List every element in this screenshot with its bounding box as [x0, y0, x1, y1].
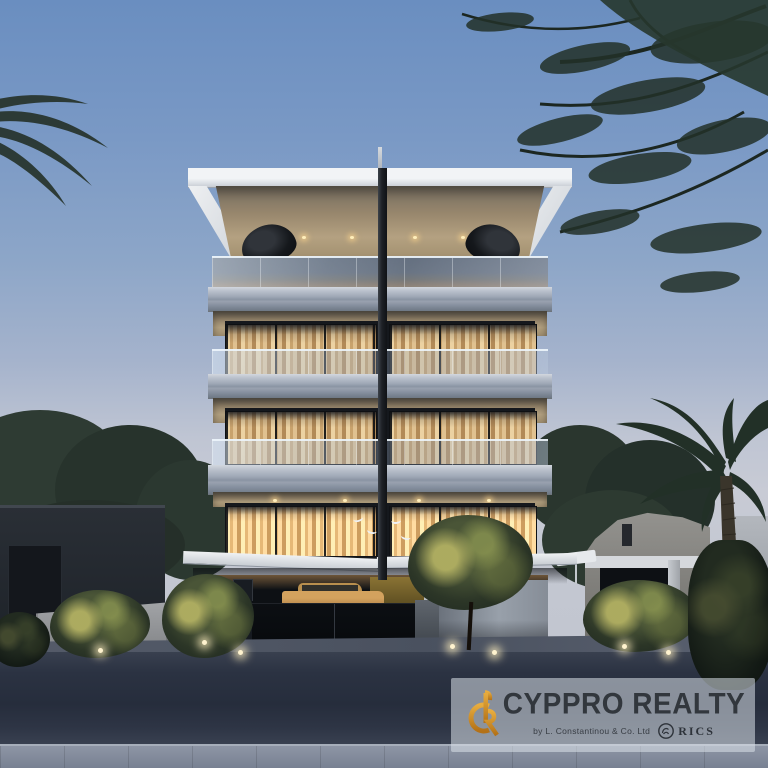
ceiling-spotlight — [417, 499, 421, 502]
lit-window — [225, 506, 377, 557]
ceiling-spotlight — [302, 236, 306, 239]
garden-uplight — [622, 644, 627, 649]
garden-uplight — [202, 640, 207, 645]
garden-uplight — [238, 650, 243, 655]
dark-bush-corner — [688, 540, 768, 690]
ceiling-spotlight — [273, 499, 277, 502]
watermark-subline: by L. Constantinou & Co. Ltd RICS — [533, 722, 715, 740]
garden-uplight — [666, 650, 671, 655]
rics-badge: RICS — [657, 722, 715, 740]
ceiling-spotlight — [350, 236, 354, 239]
ceiling-spotlight — [343, 499, 347, 502]
ceiling-spotlight — [413, 236, 417, 239]
cyppro-cr-monogram-icon — [459, 689, 503, 741]
patio-umbrella-pole — [575, 562, 577, 584]
rics-label: RICS — [678, 724, 715, 739]
brand-byline: by L. Constantinou & Co. Ltd — [533, 726, 650, 736]
rics-lion-icon — [657, 722, 675, 740]
ceiling-spotlight — [461, 236, 465, 239]
twilight-apartment-render: CYPPRO REALTY by L. Constantinou & Co. L… — [0, 0, 768, 768]
brand-name: CYPPRO REALTY — [503, 689, 745, 719]
garden-uplight — [450, 644, 455, 649]
garden-uplight — [492, 650, 497, 655]
central-party-wall — [378, 168, 387, 580]
ceiling-spotlight — [487, 499, 491, 502]
watermark-cyppro-realty: CYPPRO REALTY by L. Constantinou & Co. L… — [451, 678, 755, 752]
garden-uplight — [98, 648, 103, 653]
watermark-text-block: CYPPRO REALTY by L. Constantinou & Co. L… — [503, 690, 745, 740]
